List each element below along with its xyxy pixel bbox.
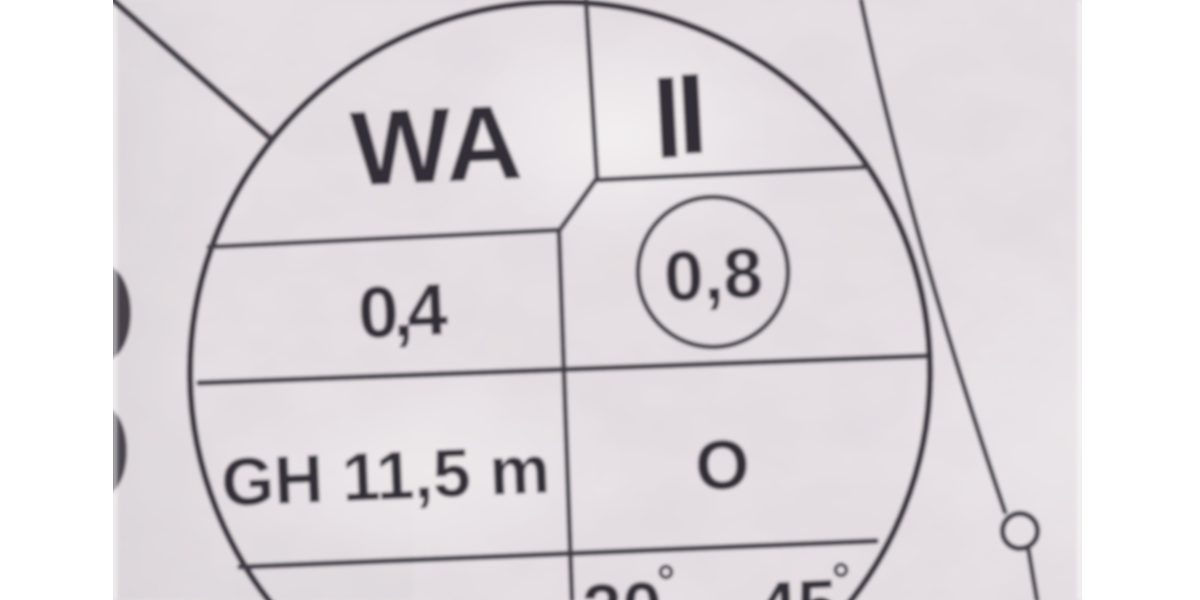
svg-text:0,4: 0,4 bbox=[356, 269, 449, 354]
svg-text:45: 45 bbox=[756, 565, 840, 600]
svg-text:20: 20 bbox=[581, 567, 665, 600]
svg-text:O: O bbox=[693, 425, 751, 505]
svg-text:GH 11,5 m: GH 11,5 m bbox=[220, 431, 552, 521]
svg-text:0,8: 0,8 bbox=[662, 234, 764, 317]
svg-text:WA: WA bbox=[348, 83, 524, 209]
